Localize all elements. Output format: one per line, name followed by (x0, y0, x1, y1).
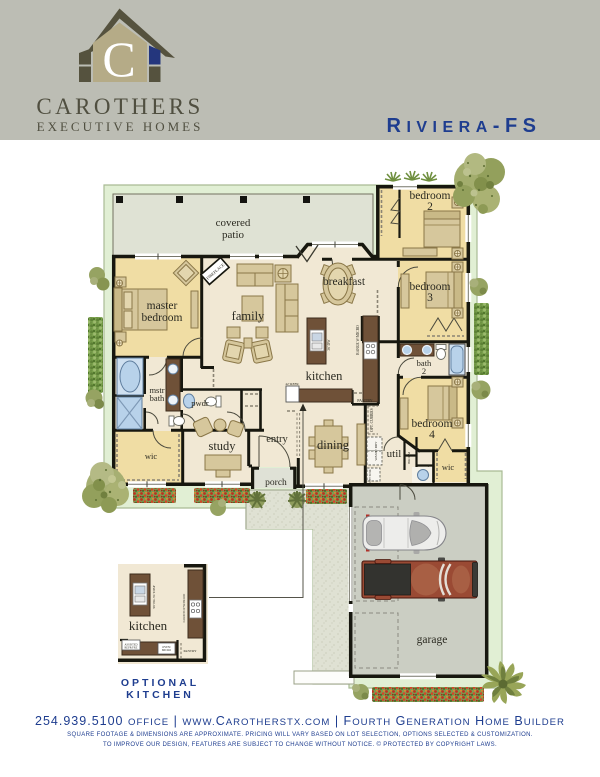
svg-text:family: family (232, 309, 265, 323)
svg-text:dining: dining (317, 438, 350, 452)
svg-text:OPT SINK: OPT SINK (368, 468, 372, 482)
svg-text:C: C (102, 31, 135, 87)
svg-text:2: 2 (422, 366, 426, 376)
svg-text:BROOM: BROOM (407, 452, 411, 464)
svg-text:util: util (387, 448, 402, 460)
svg-text:study: study (208, 439, 236, 453)
svg-text:PANTRY: PANTRY (357, 398, 373, 403)
svg-text:2: 2 (427, 201, 433, 213)
svg-text:WASH / DRY: WASH / DRY (374, 441, 378, 461)
svg-text:CAROTHERS: CAROTHERS (36, 94, 203, 119)
svg-text:kitchen: kitchen (129, 618, 168, 633)
svg-text:OPTIONAL: OPTIONAL (121, 677, 199, 689)
svg-text:REFR/FRZ: REFR/FRZ (125, 647, 138, 650)
svg-text:36' DW: 36' DW (327, 339, 331, 351)
svg-text:breakfast: breakfast (323, 276, 366, 288)
svg-text:wic: wic (442, 462, 455, 472)
svg-text:patio: patio (222, 229, 244, 241)
svg-text:master: master (147, 300, 178, 312)
svg-text:3: 3 (427, 292, 433, 304)
svg-text:COOKTOP W/HOOD: COOKTOP W/HOOD (182, 593, 186, 622)
svg-text:96' ISL W/ DISP: 96' ISL W/ DISP (152, 585, 156, 608)
svg-text:RIVIERA-FS: RIVIERA-FS (386, 115, 541, 137)
svg-text:EXECUTIVE HOMES: EXECUTIVE HOMES (37, 119, 204, 134)
svg-text:pwdr: pwdr (191, 398, 209, 408)
svg-text:42' REFR: 42' REFR (285, 382, 299, 386)
svg-text:bath: bath (150, 393, 165, 403)
svg-text:kitchen: kitchen (306, 369, 344, 383)
svg-text:covered: covered (216, 217, 251, 229)
svg-text:RANGE W/MICRO: RANGE W/MICRO (356, 325, 360, 355)
svg-text:TO IMPROVE OUR DESIGN, FEATURE: TO IMPROVE OUR DESIGN, FEATURES ARE SUBJ… (103, 741, 497, 748)
svg-text:OPT. CUBBIES: OPT. CUBBIES (370, 408, 374, 432)
svg-text:bedroom: bedroom (142, 312, 183, 324)
svg-text:wic: wic (145, 451, 158, 461)
svg-text:porch: porch (265, 478, 287, 488)
svg-text:garage: garage (417, 634, 448, 646)
svg-text:254.939.5100 OFFICE | WWW.: 254.939.5100 OFFICE | WWW.CAROTHERSTX.CO… (35, 714, 565, 728)
svg-text:SQUARE FOOTAGE & DIMENSIONS AR: SQUARE FOOTAGE & DIMENSIONS ARE APPROXIM… (67, 732, 533, 738)
svg-text:KITCHEN: KITCHEN (126, 689, 194, 701)
svg-text:4: 4 (429, 429, 435, 441)
svg-text:entry: entry (266, 434, 288, 445)
svg-text:PANTRY: PANTRY (183, 649, 197, 653)
svg-text:MICRO: MICRO (162, 649, 171, 652)
